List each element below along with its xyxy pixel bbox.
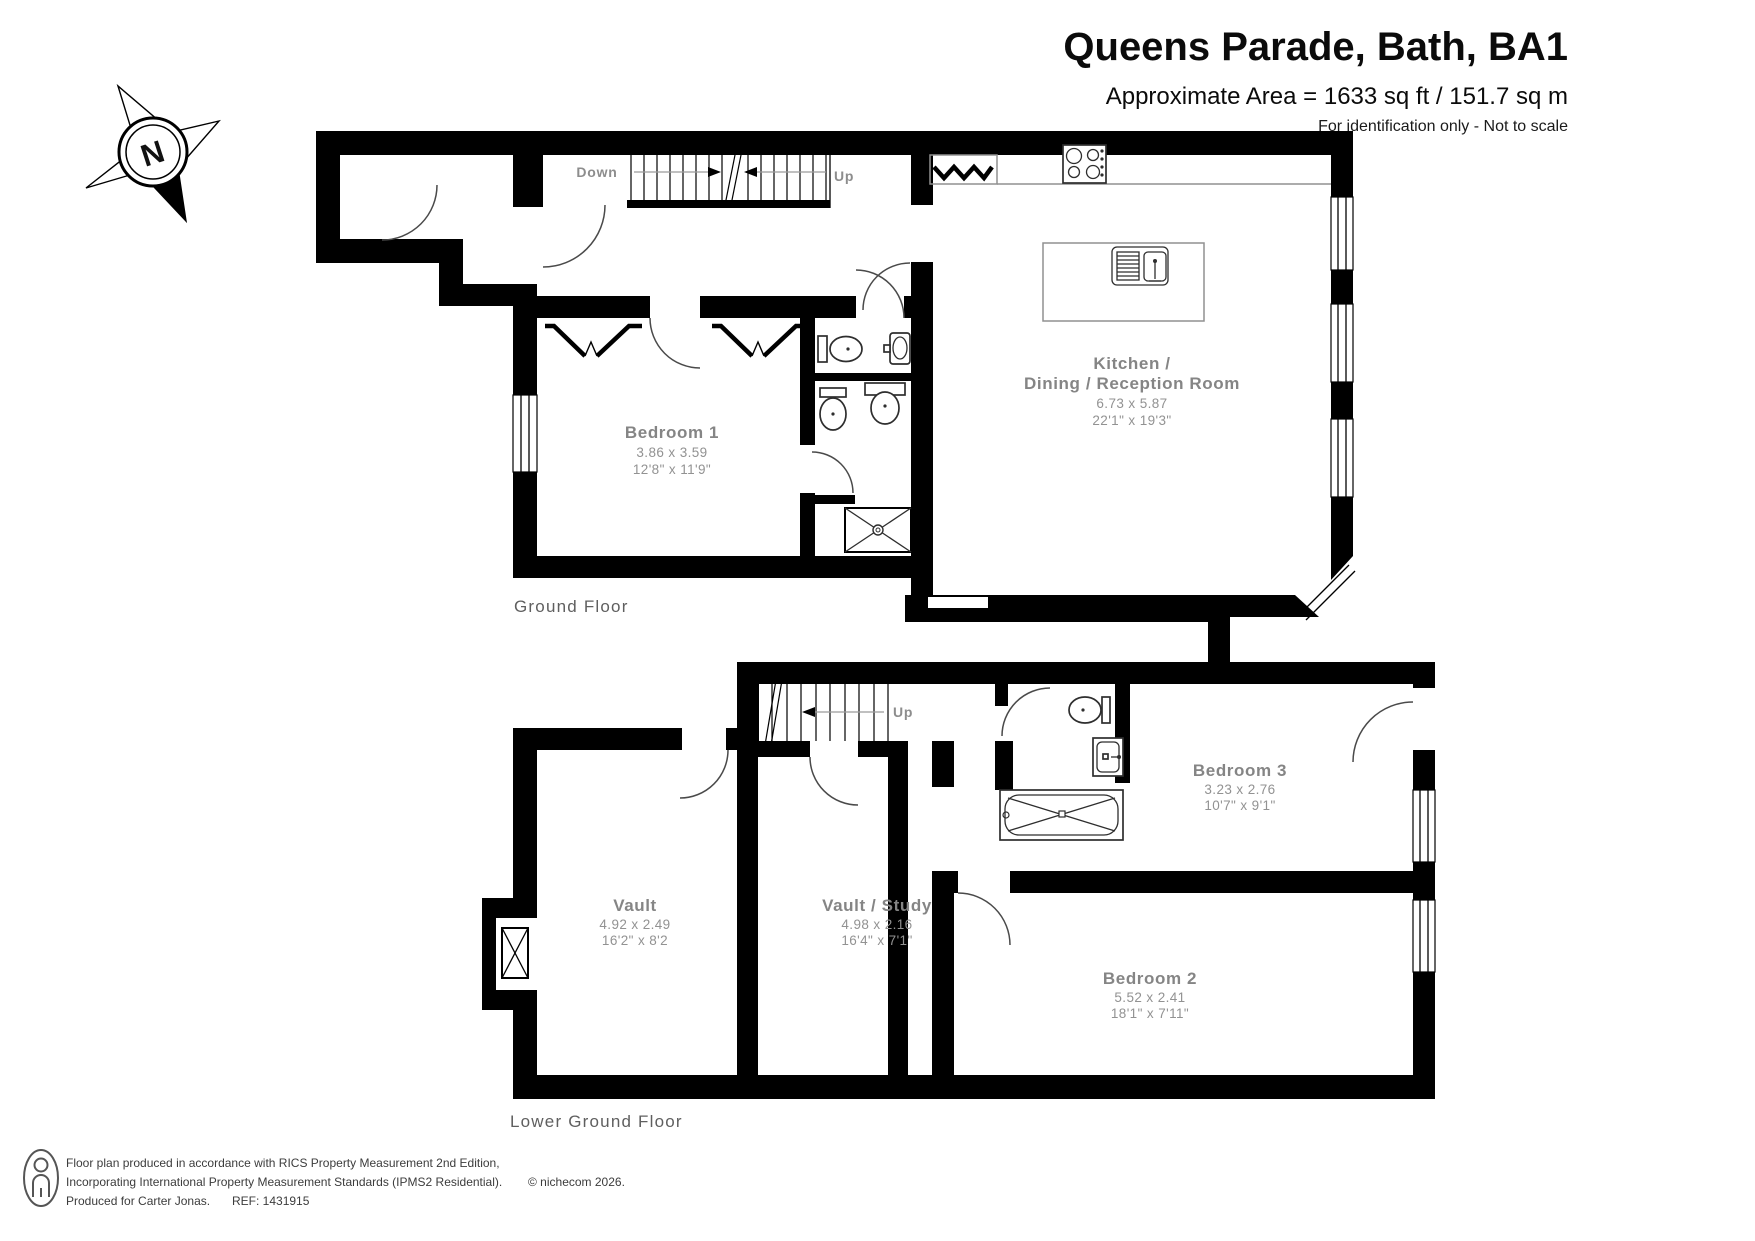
bedroom3-name: Bedroom 3 (1193, 761, 1287, 780)
vault-dims-ft: 16'2" x 8'2 (602, 933, 668, 948)
window-right-1 (1331, 197, 1353, 270)
vault-name: Vault (613, 896, 657, 915)
vault-lightwell-box (502, 928, 528, 978)
radiator-zigzag (934, 167, 992, 178)
vault-label: Vault 4.92 x 2.49 16'2" x 8'2 (599, 896, 670, 948)
window-right-2 (1331, 304, 1353, 382)
stair-direction-arrows (634, 167, 826, 177)
wc2-toilet (820, 388, 846, 430)
lower-stair-break-mark (765, 680, 782, 745)
bedroom3-door-arc (1353, 702, 1413, 762)
bedroom3-dims-m: 3.23 x 2.76 (1204, 782, 1275, 797)
header: Queens Parade, Bath, BA1 Approximate Are… (1063, 25, 1568, 135)
floorplan-page: Queens Parade, Bath, BA1 Approximate Are… (0, 0, 1755, 1241)
bedroom1-name: Bedroom 1 (625, 423, 719, 442)
hob (1063, 145, 1106, 183)
bedroom3-dims-ft: 10'7" x 9'1" (1204, 798, 1275, 813)
stairs-up-label: Up (834, 168, 854, 184)
bedroom1-door-arc (650, 318, 700, 368)
wc2-basin (865, 383, 905, 424)
compass-rose: N (86, 86, 219, 221)
bedroom2-label: Bedroom 2 5.52 x 2.41 18'1" x 7'11" (1103, 969, 1197, 1021)
bedroom1-dims-ft: 12'8" x 11'9" (633, 462, 711, 477)
stair-break-mark (725, 150, 742, 205)
bedroom3-label: Bedroom 3 3.23 x 2.76 10'7" x 9'1" (1193, 761, 1287, 813)
page-title: Queens Parade, Bath, BA1 (1063, 25, 1568, 69)
footer: Floor plan produced in accordance with R… (24, 1150, 625, 1208)
window-right-3 (1331, 419, 1353, 497)
kitchen-dims-ft: 22'1" x 19'3" (1092, 413, 1171, 428)
lower-ground-stairs: Up (765, 680, 913, 745)
footer-copyright: © nichecom 2026. (528, 1175, 625, 1189)
lower-stairs-up-label: Up (893, 704, 913, 720)
kitchen-label: Kitchen / Dining / Reception Room 6.73 x… (1024, 354, 1240, 428)
vault-study-label: Vault / Study 4.98 x 2.16 16'4" x 7'1" (822, 896, 932, 948)
bedroom1-window-chevrons (545, 326, 809, 356)
stair-treads (631, 155, 826, 200)
shower-tray (845, 508, 911, 552)
lower-ground-floor-plan: Up (482, 595, 1435, 1131)
kitchen-door-arc (863, 263, 910, 310)
lower-stair-arrow (802, 707, 884, 717)
ground-floor-stairs: Down Up (576, 150, 854, 208)
window-left-bedroom1 (513, 395, 537, 472)
ground-floor-label: Ground Floor (514, 597, 629, 616)
bedroom2-door-arc (958, 893, 1010, 945)
vault-dims-m: 4.92 x 2.49 (599, 917, 670, 932)
lower-basin (1093, 738, 1123, 776)
wc1-toilet (818, 336, 862, 362)
pavement-light-slot (928, 597, 988, 608)
bathtub (1000, 790, 1123, 840)
vault-study-name: Vault / Study (822, 896, 932, 915)
kitchen-island (1043, 243, 1204, 321)
approximate-area: Approximate Area = 1633 sq ft / 151.7 sq… (1106, 83, 1568, 110)
bedroom2-dims-m: 5.52 x 2.41 (1114, 990, 1185, 1005)
footer-line1: Floor plan produced in accordance with R… (66, 1156, 500, 1170)
entry-door-arc (382, 185, 437, 240)
lower-ground-walls (482, 595, 1435, 1099)
kitchen-name-line2: Dining / Reception Room (1024, 374, 1240, 393)
stair-landing-edge (627, 200, 830, 208)
bedroom1-dims-m: 3.86 x 3.59 (636, 445, 707, 460)
kitchen-name-line1: Kitchen / (1093, 354, 1170, 373)
wc-door-arc (856, 270, 904, 318)
floorplan-svg: Queens Parade, Bath, BA1 Approximate Are… (0, 0, 1755, 1241)
ground-floor-plan: Down Up (316, 131, 1355, 620)
bedroom3-door-gap (1413, 688, 1435, 750)
vault-study-dims-ft: 16'4" x 7'1" (841, 933, 912, 948)
stairs-down-label: Down (576, 164, 617, 180)
window-lower-right-1 (1413, 790, 1435, 862)
person-scale-icon (24, 1150, 58, 1206)
lower-shower-door-arc (1002, 688, 1050, 736)
bedroom2-dims-ft: 18'1" x 7'11" (1111, 1006, 1189, 1021)
disclaimer: For identification only - Not to scale (1318, 118, 1568, 135)
footer-line2: Incorporating International Property Mea… (66, 1175, 502, 1189)
vault-study-dims-m: 4.98 x 2.16 (841, 917, 912, 932)
footer-line3: Produced for Carter Jonas. (66, 1194, 210, 1208)
shower-room-door-arc (812, 452, 853, 493)
footer-ref: REF: 1431915 (232, 1194, 310, 1208)
hall-door-arc (543, 205, 605, 267)
bedroom1-label: Bedroom 1 3.86 x 3.59 12'8" x 11'9" (625, 423, 719, 477)
study-door-arc (810, 757, 858, 805)
window-lower-right-2 (1413, 900, 1435, 972)
bedroom2-name: Bedroom 2 (1103, 969, 1197, 988)
lower-ground-floor-label: Lower Ground Floor (510, 1112, 683, 1131)
vault-door-arc (680, 750, 728, 798)
lower-toilet (1069, 697, 1110, 723)
wc1-basin (884, 333, 910, 364)
lower-right-openings (1413, 688, 1435, 972)
kitchen-dims-m: 6.73 x 5.87 (1096, 396, 1167, 411)
